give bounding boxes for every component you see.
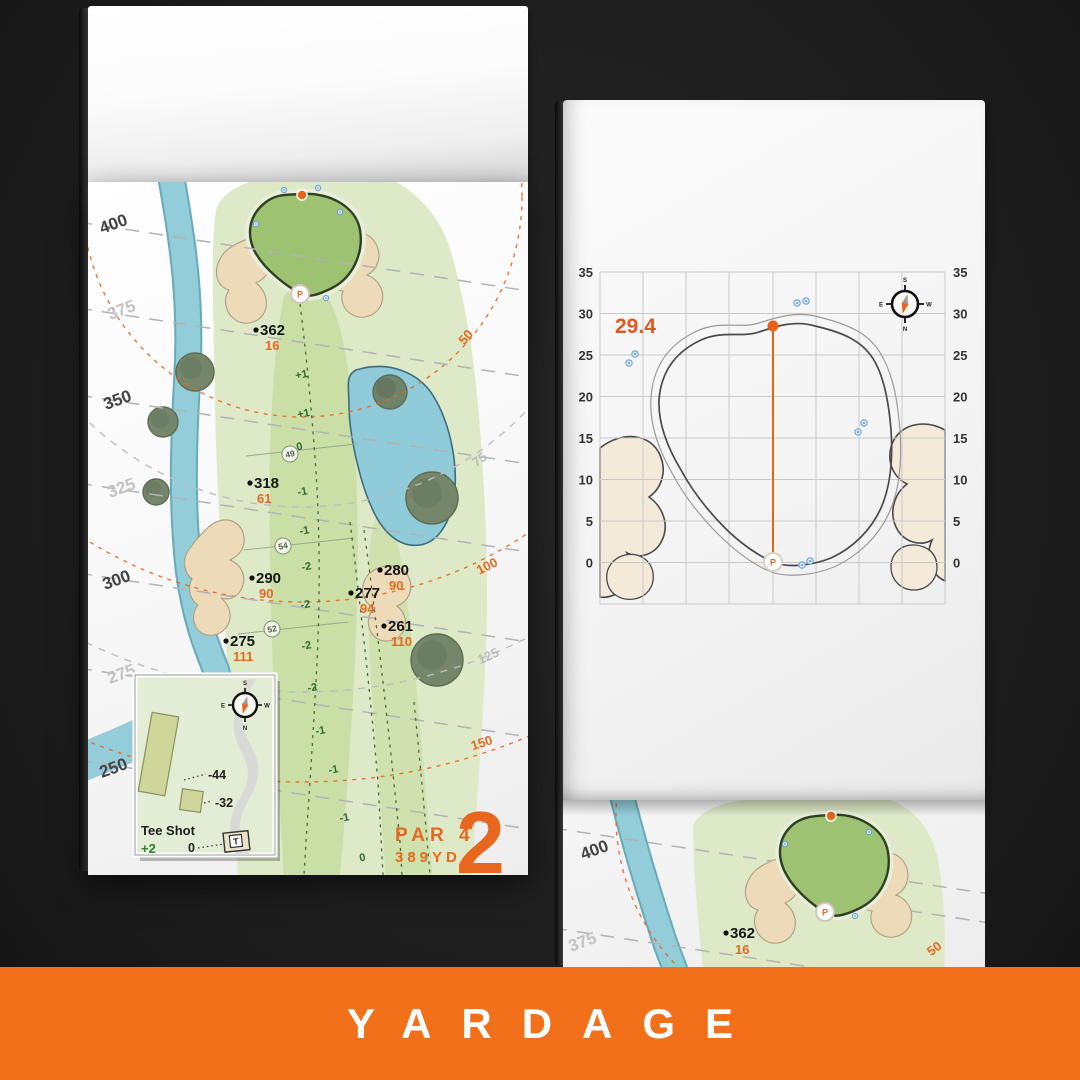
marker-carry: 277: [355, 585, 380, 602]
compass-w: W: [264, 704, 270, 710]
slope-value: -1: [328, 763, 340, 777]
marker-carry: 275: [230, 633, 255, 650]
compass-e: E: [879, 303, 883, 309]
yardage-banner: YARDAGE: [0, 967, 1080, 1080]
marker-front: 16: [735, 942, 749, 957]
compass-s: S: [903, 278, 907, 284]
compass-e: E: [221, 704, 225, 710]
green-outline: [651, 315, 901, 576]
margin-yardages: 400 375 350 325 300 275 250: [97, 210, 138, 782]
y-tick: 10: [953, 473, 967, 488]
marker-front: 16: [265, 338, 279, 353]
product-photo-background: 49 54 52 +1 +1 0 -1 -1 -2 -2 -2 -2 -1 -1: [0, 0, 1080, 1080]
slope-value: -2: [300, 598, 312, 612]
banner-title: YARDAGE: [317, 1000, 763, 1048]
slope-value: -1: [299, 524, 311, 538]
compass-w: W: [926, 303, 932, 309]
yardage-book-left: 49 54 52 +1 +1 0 -1 -1 -2 -2 -2 -2 -1 -1: [88, 6, 528, 875]
marker-front: 110: [391, 634, 412, 649]
hole-map-page: 49 54 52 +1 +1 0 -1 -1 -2 -2 -2 -2 -1 -1: [88, 182, 528, 875]
inset-score: +2: [141, 841, 156, 856]
marker-front: 94: [360, 601, 375, 616]
green-depth-chart: 35 30 25 20 15 10 5 0 35 30 25 20 15 10 …: [563, 100, 985, 800]
slope-value: +1: [296, 407, 310, 421]
margin-yardages: 400 375: [566, 836, 611, 956]
margin-yardage: 300: [100, 566, 133, 594]
pin-letter: P: [822, 908, 828, 918]
next-hole-graphic: P 362 16 400 375 50: [563, 800, 985, 967]
compass-s: S: [243, 681, 247, 687]
slope-value: -1: [315, 724, 327, 738]
hole-map-graphic: 49 54 52 +1 +1 0 -1 -1 -2 -2 -2 -2 -1 -1: [88, 182, 528, 875]
inset-title: Tee Shot: [141, 823, 196, 838]
slope-value: -2: [301, 560, 313, 574]
y-tick: 10: [579, 473, 593, 488]
y-tick: 35: [953, 265, 967, 280]
marker-front: 90: [389, 578, 403, 593]
green-detail-page: 35 30 25 20 15 10 5 0 35 30 25 20 15 10 …: [563, 100, 985, 800]
marker-carry: 290: [256, 570, 281, 587]
y-tick: 25: [579, 348, 593, 363]
margin-yardage: 375: [566, 928, 599, 956]
marker-front: 61: [257, 491, 271, 506]
y-tick: 0: [953, 556, 960, 571]
margin-yardage: 400: [97, 210, 130, 238]
hole-number: 2: [456, 793, 505, 875]
y-tick: 15: [579, 431, 593, 446]
y-tick: 5: [586, 514, 593, 529]
marker-carry: 280: [384, 562, 409, 579]
pin-letter: P: [770, 558, 776, 568]
y-tick: 35: [579, 265, 593, 280]
marker-carry: 318: [254, 475, 279, 492]
marker-carry: 362: [260, 322, 285, 339]
inset-carry-long: -44: [208, 768, 226, 782]
depth-axis-right: 35 30 25 20 15 10 5 0: [953, 265, 967, 571]
depth-axis-left: 35 30 25 20 15 10 5 0: [579, 265, 593, 571]
flipped-blank-page: [88, 6, 528, 182]
y-tick: 25: [953, 348, 967, 363]
compass-n: N: [903, 327, 907, 333]
inset-zero: 0: [188, 841, 195, 855]
marker-front: 90: [259, 586, 273, 601]
yardage-book-right: 35 30 25 20 15 10 5 0 35 30 25 20 15 10 …: [563, 100, 985, 967]
marker-front: 111: [233, 649, 253, 664]
fairway-area: [269, 283, 357, 875]
slope-value: -1: [297, 485, 309, 499]
y-tick: 15: [953, 431, 967, 446]
pin-letter: P: [297, 290, 303, 300]
y-tick: 30: [953, 307, 967, 322]
tee-shot-inset: S N W E -44 -32 Tee Shot +2 0 T: [135, 675, 280, 861]
slope-value: -2: [301, 639, 313, 653]
margin-yardage: 350: [101, 386, 134, 414]
y-tick: 20: [953, 390, 967, 405]
y-tick: 20: [579, 390, 593, 405]
slope-value: +1: [294, 368, 308, 382]
inset-carry-short: -32: [215, 796, 233, 810]
chart-compass: S N W E: [879, 278, 932, 333]
y-tick: 0: [586, 556, 593, 571]
slope-value: -1: [339, 811, 351, 825]
margin-yardage: 400: [578, 836, 611, 864]
marker-carry: 261: [388, 618, 413, 635]
compass-n: N: [243, 726, 247, 732]
y-tick: 5: [953, 514, 960, 529]
y-tick: 30: [579, 307, 593, 322]
depth-value: 29.4: [615, 315, 656, 338]
next-hole-map-page: P 362 16 400 375 50: [563, 800, 985, 967]
slope-value: -2: [307, 681, 319, 695]
margin-yardage: 325: [105, 474, 138, 502]
margin-yardage: 375: [105, 296, 138, 324]
distance-label: 389YD: [395, 849, 461, 866]
marker-carry: 362: [730, 925, 755, 942]
